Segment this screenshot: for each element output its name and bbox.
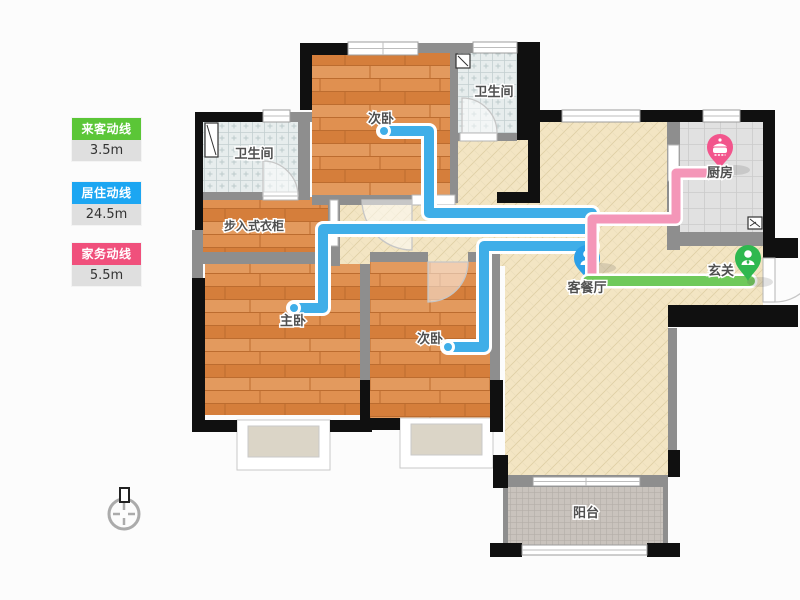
entry-pin-shadow xyxy=(747,277,773,287)
label-kitchen: 厨房 xyxy=(707,165,733,181)
master-bedroom-floor xyxy=(205,264,360,415)
floorplan-page: 来客动线 3.5m 居住动线 24.5m 家务动线 5.5m xyxy=(0,0,800,600)
label-living-dining: 客餐厅 xyxy=(567,280,606,296)
label-bath-left: 卫生间 xyxy=(234,146,273,162)
label-closet: 步入式衣柜 xyxy=(224,218,284,233)
label-bedroom-top: 次卧 xyxy=(368,111,394,127)
label-bath-top: 卫生间 xyxy=(474,84,513,100)
label-balcony: 阳台 xyxy=(573,505,599,521)
label-bedroom-bottom: 次卧 xyxy=(417,331,443,347)
label-entry: 玄关 xyxy=(708,263,734,279)
compass-icon xyxy=(109,488,139,529)
floorplan-svg: 卫生间 次卧 卫生间 步入式衣柜 主卧 次卧 客餐厅 厨房 玄关 阳台 xyxy=(0,0,800,600)
label-master-bedroom: 主卧 xyxy=(280,313,306,329)
